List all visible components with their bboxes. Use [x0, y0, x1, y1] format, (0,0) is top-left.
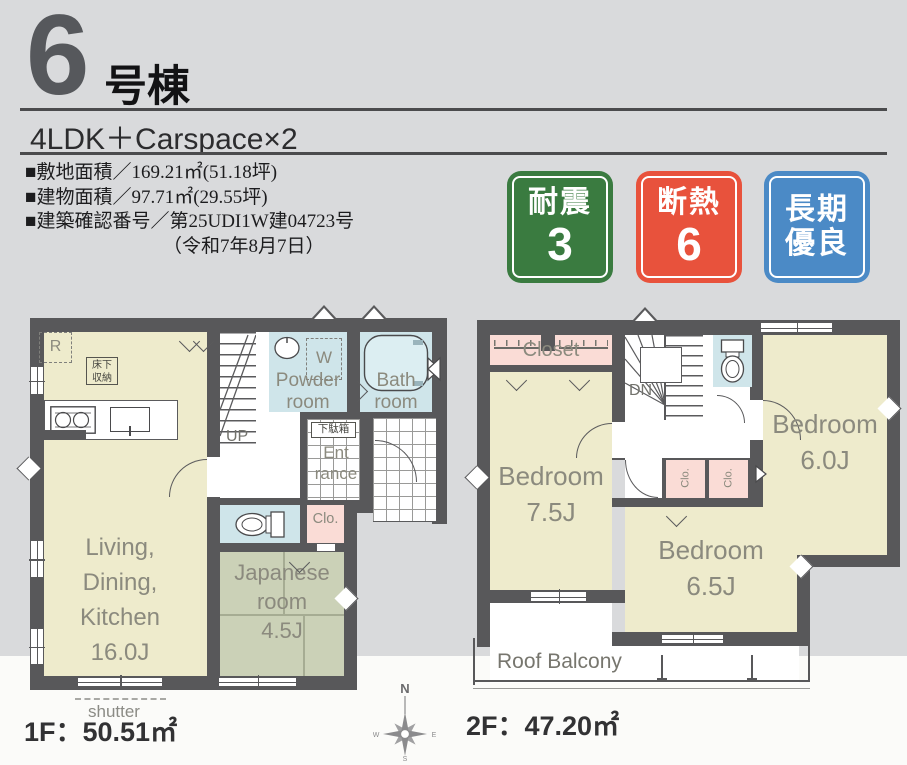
header-rule-top [20, 108, 887, 111]
japanese-size: 4.5J [220, 616, 344, 645]
bedroom-75-name: Bedroom [490, 458, 612, 494]
badge-insulation: 断熱 6 [636, 171, 742, 283]
stairs-dn-label: DN [629, 382, 652, 400]
window [30, 628, 44, 665]
bath-room-label: Bath room [360, 370, 432, 414]
toilet-icon-2f [719, 338, 747, 384]
bedroom-60-size: 6.0J [763, 442, 887, 478]
entrance-label: Ent rance [311, 442, 361, 484]
door-gap [612, 422, 625, 458]
clo-wall [662, 460, 666, 498]
door-gap [717, 387, 745, 395]
balcony-post-foot [747, 678, 757, 680]
wall-segment [490, 365, 612, 372]
underfloor-line2: 収納 [87, 372, 117, 385]
entrance-line1: Ent [311, 442, 361, 463]
closet-1f-label: Clo. [307, 511, 344, 527]
roof-balcony-label: Roof Balcony [497, 650, 622, 674]
ldk-size: 16.0J [58, 635, 182, 670]
badge-longterm: 長期 優良 [764, 171, 870, 283]
shutter-dash-line [75, 698, 166, 700]
badge-inner-border [769, 176, 865, 278]
stairs-landing [640, 347, 682, 383]
balcony-rail [473, 680, 810, 682]
kitchen-stub-wall [44, 430, 86, 440]
entrance-line2: rance [311, 463, 361, 484]
bedroom-60-label: Bedroom 6.0J [763, 406, 887, 478]
wall-segment [30, 318, 447, 332]
refrigerator-box: R [39, 332, 72, 363]
clo-top-line [662, 458, 752, 460]
japanese-room-label: Japanese room 4.5J [220, 558, 344, 645]
toilet-icon-1f [233, 510, 289, 539]
badge-seismic: 耐震 3 [507, 171, 613, 283]
sink-icon [273, 335, 303, 361]
unit-number: 6 [26, 2, 89, 110]
flyer-page: 6 号棟 4LDK＋Carspace×2 ■敷地面積／169.21㎡(51.18… [0, 0, 907, 765]
powder-line1: Powder [269, 370, 347, 392]
balcony-rail [473, 638, 475, 685]
bedroom-65-name: Bedroom [625, 532, 797, 568]
roof-vent-icon-inner [314, 308, 334, 319]
detail-building-area: ■建物面積／97.71㎡(29.55坪) [25, 186, 354, 211]
floor1-area-label: 1F：50.51㎡ [24, 710, 177, 749]
bedroom-60-name: Bedroom [763, 406, 887, 442]
window [30, 540, 44, 578]
clo-wall [705, 460, 709, 498]
roof-vent-icon-inner [364, 308, 384, 319]
bath-line1: Bath [360, 370, 432, 392]
wall-segment [300, 505, 307, 543]
detail-confirmation-number: ■建築確認番号／第25UDI1W建04723号 [25, 210, 354, 235]
door-gap [750, 400, 763, 440]
bath-line2: room [360, 392, 432, 414]
floor-plan-1f: UP R 床下 収納 W [30, 318, 447, 690]
ldk-line1: Living, [58, 530, 182, 565]
window [661, 634, 724, 644]
wall-segment [477, 320, 900, 335]
window [760, 322, 833, 333]
window [530, 591, 587, 602]
wall-segment [300, 419, 307, 500]
wall-segment [612, 498, 753, 507]
closet-door-gap [316, 543, 336, 552]
clo-wall [748, 460, 752, 498]
window [218, 677, 297, 687]
detail-confirmation-date: （令和7年8月7日） [25, 235, 354, 260]
ldk-line2: Dining, [58, 565, 182, 600]
ldk-label: Living, Dining, Kitchen 16.0J [58, 530, 182, 670]
japanese-line2: room [220, 587, 344, 616]
stairs-up-label: UP [226, 428, 248, 446]
unit-suffix: 号棟 [104, 52, 190, 114]
property-details: ■敷地面積／169.21㎡(51.18坪) ■建物面積／97.71㎡(29.55… [25, 161, 354, 259]
clo-1-label: Clo. [680, 459, 692, 498]
wall-segment [887, 320, 900, 567]
roof-vent-icon-inner [635, 310, 655, 321]
badge-inner-border [512, 176, 608, 278]
bedroom-65-size: 6.5J [625, 568, 797, 604]
refrigerator-label: R [50, 338, 62, 355]
badge-inner-border [641, 176, 737, 278]
balcony-rail-outer [473, 688, 810, 689]
compass-rose: N W E S [373, 680, 437, 762]
ldk-line3: Kitchen [58, 600, 182, 635]
compass-w: W [373, 732, 380, 739]
roof-balcony-bottom [612, 646, 799, 683]
japanese-line1: Japanese [220, 558, 344, 587]
compass-s: S [403, 756, 408, 762]
kitchen-faucet [129, 426, 131, 436]
window [77, 677, 163, 687]
powder-room-label: Powder room [269, 370, 347, 414]
powder-line2: room [269, 392, 347, 414]
bedroom-75-label: Bedroom 7.5J [490, 458, 612, 530]
wall-segment [360, 412, 373, 513]
closet-2f-label: Closet [490, 339, 612, 362]
shoe-box: 下駄箱 [311, 422, 356, 438]
header-rule-bottom [20, 152, 887, 155]
window [30, 366, 44, 395]
underfloor-storage-box: 床下 収納 [86, 357, 118, 385]
clo-2-label: Clo. [723, 459, 735, 498]
floor-plan-2f: DN Closet Bedroom 7.5J [477, 320, 900, 692]
balcony-rail [808, 646, 810, 682]
floor2-area-label: 2F：47.20㎡ [466, 704, 619, 743]
bedroom-65-label: Bedroom 6.5J [625, 532, 797, 604]
door-gap [207, 457, 220, 497]
bedroom-75-size: 7.5J [490, 494, 612, 530]
washer-label: W [316, 348, 332, 367]
bath-window-icon [426, 356, 442, 382]
compass-e: E [432, 732, 437, 739]
underfloor-line1: 床下 [87, 359, 117, 372]
detail-site-area: ■敷地面積／169.21㎡(51.18坪) [25, 161, 354, 186]
balcony-post-foot [657, 678, 667, 680]
compass-n: N [400, 681, 409, 696]
